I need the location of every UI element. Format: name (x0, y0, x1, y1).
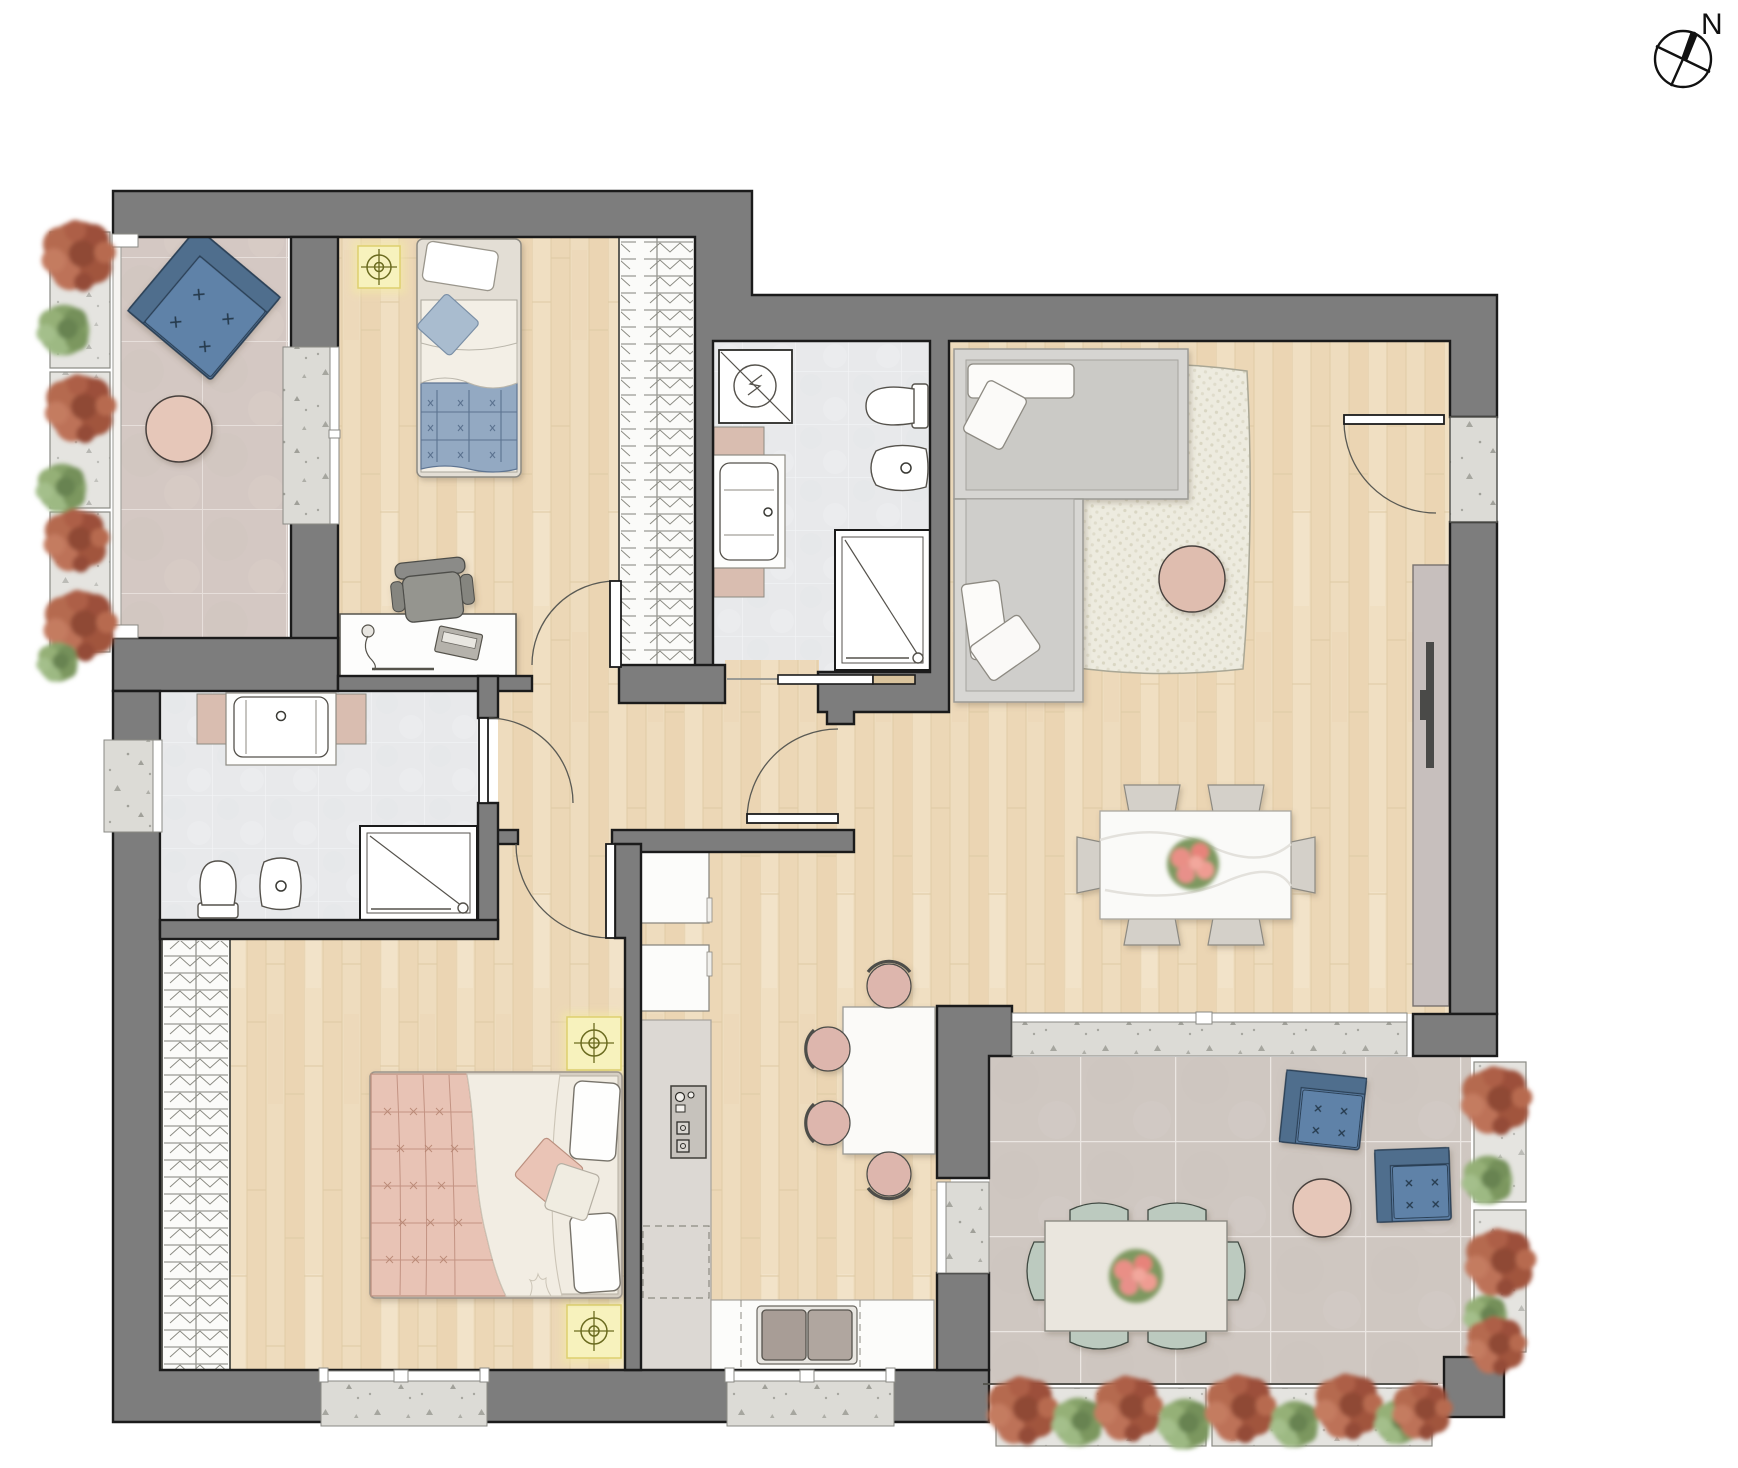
svg-text:N: N (1701, 8, 1723, 41)
